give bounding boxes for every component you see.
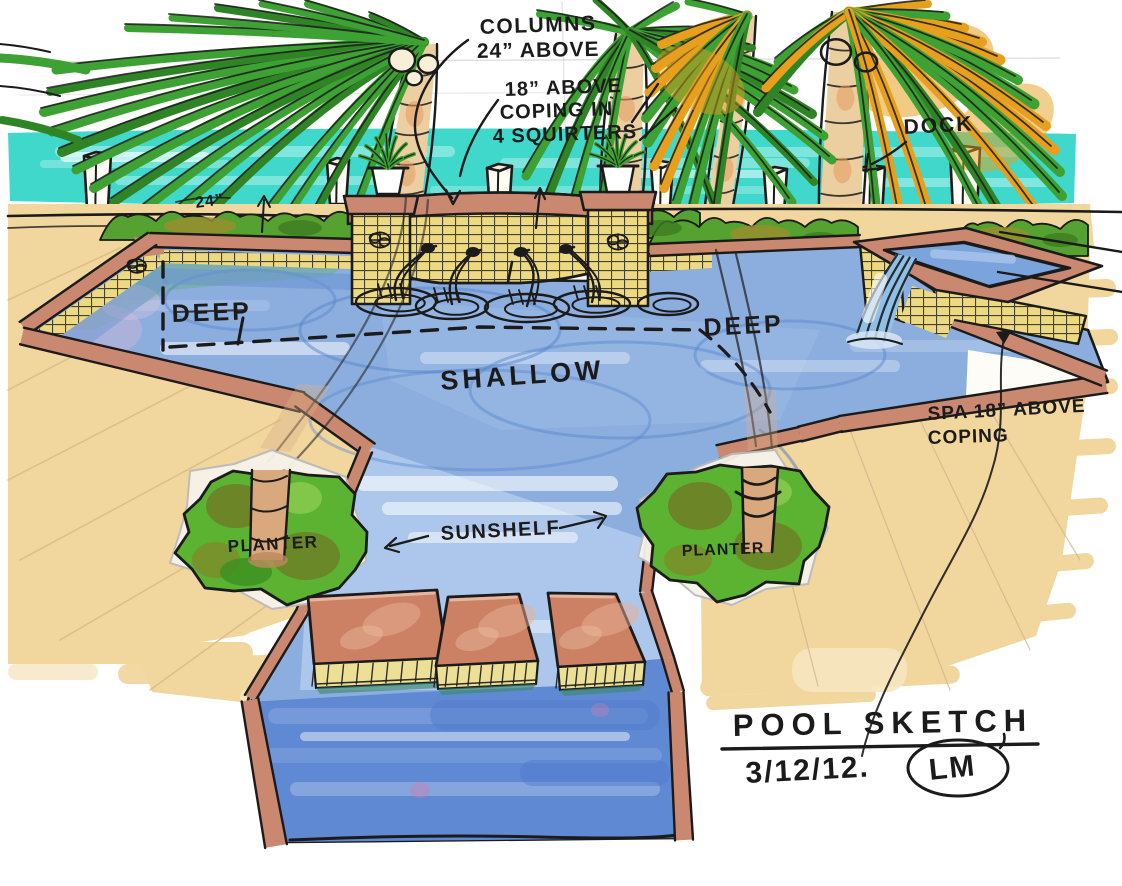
svg-text:COLUMNS: COLUMNS [479, 12, 596, 39]
svg-text:18” ABOVE: 18” ABOVE [504, 75, 622, 101]
svg-text:DOCK: DOCK [903, 112, 974, 139]
svg-text:COPING: COPING [927, 425, 1009, 449]
svg-text:PLANTER: PLANTER [682, 540, 765, 560]
svg-text:3/12/12.: 3/12/12. [745, 751, 871, 790]
svg-text:POOL SKETCH: POOL SKETCH [733, 703, 1034, 743]
svg-text:24” ABOVE: 24” ABOVE [477, 38, 600, 63]
svg-text:DEEP: DEEP [703, 310, 784, 342]
svg-text:LM: LM [927, 749, 978, 787]
svg-text:COPING IN: COPING IN [499, 98, 613, 124]
